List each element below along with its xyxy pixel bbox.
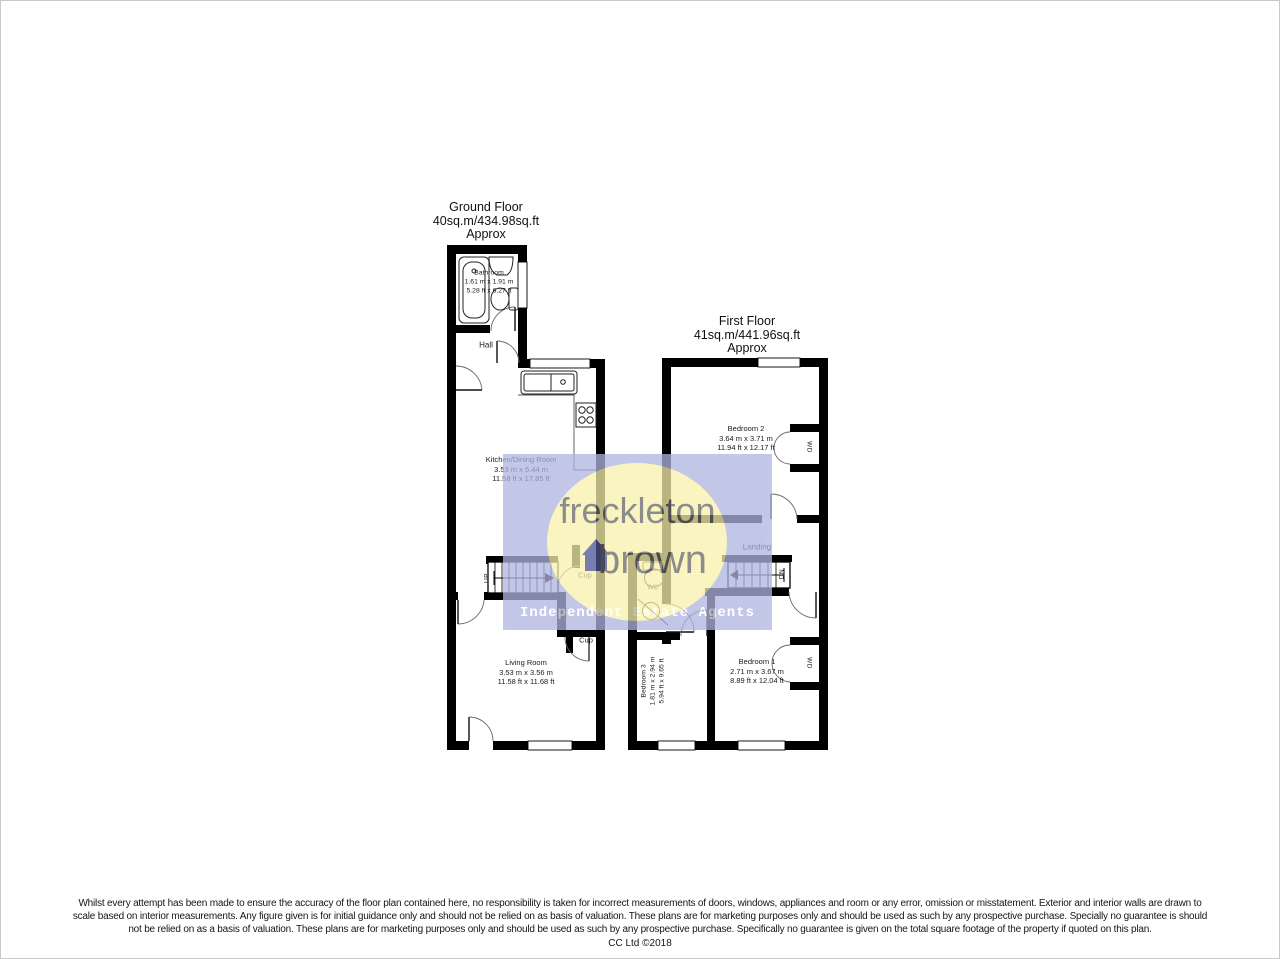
disclaimer-line3: not be relied on as a basis of valuation…	[0, 923, 1280, 936]
room-dims-imperial: 11.58 ft x 11.68 ft	[498, 677, 555, 687]
window	[528, 741, 572, 750]
disclaimer-text: Whilst every attempt has been made to en…	[0, 897, 1280, 950]
room-dims-imperial: 5.94 ft x 9.65 ft	[658, 657, 667, 706]
room-dims-imperial: 11.58 ft x 17.85 ft	[486, 474, 556, 484]
wc-label: WC	[647, 585, 659, 592]
cupboard-label-upper: Cup	[578, 571, 592, 580]
room-dims-metric: 3.53 m x 5.44 m	[486, 464, 556, 474]
bathroom-label: Bathroom 1.61 m x 1.91 m 5.28 ft x 6.27 …	[465, 269, 514, 296]
window	[530, 359, 590, 368]
door-arc	[491, 307, 515, 331]
room-dims-metric: 3.53 m x 3.56 m	[498, 667, 555, 677]
disclaimer-line2: scale based on interior measurements. An…	[0, 910, 1280, 923]
ground-floor-title: Ground Floor 40sq.m/434.98sq.ft Approx	[376, 201, 596, 242]
door-arc	[771, 494, 797, 519]
first-floor-title-line: First Floor	[637, 315, 857, 329]
room-name: Kitchen/Dining Room	[486, 455, 556, 465]
ground-floor-area: 40sq.m/434.98sq.ft	[376, 215, 596, 229]
room-dims-metric: 1.81 m x 2.94 m	[649, 657, 658, 706]
cupboard-label-lower: Cup	[579, 636, 593, 645]
room-name: Bedroom 2	[717, 424, 774, 434]
stairs-up	[488, 562, 558, 593]
room-dims-imperial: 11.94 ft x 12.17 ft	[717, 443, 774, 453]
kitchen-dining-label: Kitchen/Dining Room 3.53 m x 5.44 m 11.5…	[486, 455, 556, 484]
room-dims-imperial: 5.28 ft x 6.27 ft	[465, 287, 514, 296]
copyright-credit: CC Ltd ©2018	[0, 937, 1280, 950]
living-room-label: Living Room 3.53 m x 3.56 m 11.58 ft x 1…	[498, 658, 555, 687]
room-name: Bedroom 1	[730, 657, 784, 667]
window	[738, 741, 785, 750]
ground-floor-title-line: Ground Floor	[376, 201, 596, 215]
disclaimer-line1: Whilst every attempt has been made to en…	[0, 897, 1280, 910]
room-name: Living Room	[498, 658, 555, 668]
stairs-up-label: UP	[484, 573, 491, 583]
room-name: Bathroom	[465, 269, 514, 278]
door-arc	[458, 600, 484, 624]
first-floor-windows	[658, 358, 800, 750]
hall-label: Hall	[479, 341, 493, 350]
hob-icon	[576, 403, 596, 427]
bedroom2-label: Bedroom 2 3.64 m x 3.71 m 11.94 ft x 12.…	[717, 424, 774, 453]
wardrobe-doors	[774, 432, 790, 464]
room-dims-metric: 3.64 m x 3.71 m	[717, 433, 774, 443]
window	[518, 262, 527, 308]
window	[658, 741, 695, 750]
floorplan-drawing	[0, 0, 1280, 959]
first-floor-approx: Approx	[637, 342, 857, 356]
wardrobe-label-bedroom1: WD	[806, 657, 813, 669]
window	[758, 358, 800, 367]
door-arc	[789, 592, 816, 618]
door-arc	[469, 717, 493, 741]
door-arc	[497, 341, 519, 363]
door-arc	[666, 604, 694, 632]
door-arc	[456, 366, 482, 390]
bedroom3-label: Bedroom 3 1.81 m x 2.94 m 5.94 ft x 9.65…	[640, 657, 667, 706]
bedroom1-label: Bedroom 1 2.71 m x 3.67 m 8.89 ft x 12.0…	[730, 657, 784, 686]
landing-label: Landing	[743, 543, 771, 552]
room-name: Bedroom 3	[640, 657, 649, 706]
floorplan-page: Ground Floor 40sq.m/434.98sq.ft Approx F…	[0, 0, 1280, 959]
kitchen-sink-icon	[521, 371, 577, 394]
stairs-down-label: DN	[779, 569, 786, 579]
room-dims-metric: 1.61 m x 1.91 m	[465, 278, 514, 287]
room-dims-imperial: 8.89 ft x 12.04 ft	[730, 676, 784, 686]
cupboard-door-arc	[558, 566, 580, 588]
ground-floor-approx: Approx	[376, 228, 596, 242]
room-dims-metric: 2.71 m x 3.67 m	[730, 666, 784, 676]
wardrobe-label-bedroom2: WD	[806, 441, 813, 453]
wc-toilet-icon	[643, 562, 665, 587]
first-floor-title: First Floor 41sq.m/441.96sq.ft Approx	[637, 315, 857, 356]
first-floor-area: 41sq.m/441.96sq.ft	[637, 329, 857, 343]
